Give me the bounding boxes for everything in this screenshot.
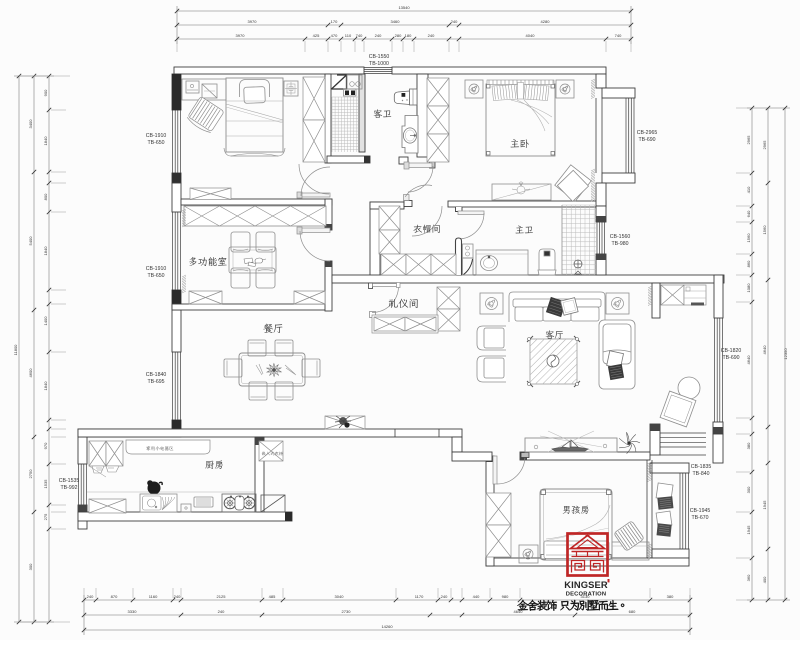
svg-text:4040: 4040 (526, 33, 536, 38)
svg-text:380: 380 (667, 594, 674, 599)
svg-text:TB-1000: TB-1000 (369, 61, 389, 67)
svg-text:TB-690: TB-690 (722, 355, 739, 361)
svg-text:275: 275 (43, 513, 48, 520)
svg-text:2965: 2965 (762, 140, 767, 150)
svg-text:DECORATION: DECORATION (566, 592, 607, 598)
svg-text:12350: 12350 (783, 348, 788, 360)
svg-text:1400: 1400 (43, 316, 48, 326)
svg-text:870: 870 (111, 594, 118, 599)
svg-text:740: 740 (356, 33, 363, 38)
svg-text:860: 860 (746, 260, 751, 267)
svg-text:1535: 1535 (43, 479, 48, 489)
svg-text:3970: 3970 (248, 19, 258, 24)
svg-text:2125: 2125 (217, 594, 227, 599)
svg-text:1840: 1840 (43, 246, 48, 256)
svg-text:300: 300 (746, 486, 751, 493)
svg-text:485: 485 (269, 594, 276, 599)
svg-text:4640: 4640 (746, 355, 751, 365)
svg-text:180: 180 (405, 33, 412, 38)
svg-text:240: 240 (87, 594, 94, 599)
svg-text:640: 640 (746, 210, 751, 217)
svg-text:1945: 1945 (762, 500, 767, 510)
svg-text:CB-1535: CB-1535 (59, 478, 80, 484)
svg-text:240: 240 (218, 609, 225, 614)
svg-text:1170: 1170 (415, 594, 424, 599)
svg-text:680: 680 (629, 609, 636, 614)
svg-text:2750: 2750 (28, 469, 33, 479)
svg-text:740: 740 (615, 33, 622, 38)
svg-text:360: 360 (746, 574, 751, 581)
svg-text:2730: 2730 (342, 609, 352, 614)
svg-text:240: 240 (441, 594, 448, 599)
svg-text:3460: 3460 (391, 19, 401, 24)
svg-text:170: 170 (331, 19, 338, 24)
svg-text:1080: 1080 (746, 283, 751, 293)
svg-text:2965: 2965 (746, 135, 751, 145)
svg-text:3970: 3970 (236, 33, 246, 38)
svg-text:425: 425 (313, 33, 320, 38)
svg-text:13540: 13540 (398, 5, 410, 10)
svg-text:1560: 1560 (762, 225, 767, 235)
svg-text:CB-1820: CB-1820 (721, 348, 742, 354)
svg-text:470: 470 (331, 33, 338, 38)
svg-text:3040: 3040 (335, 594, 345, 599)
svg-text:4640: 4640 (762, 345, 767, 355)
svg-text:TB-840: TB-840 (692, 471, 709, 477)
svg-text:3400: 3400 (28, 119, 33, 129)
svg-text:240: 240 (451, 19, 458, 24)
svg-text:KINGSER: KINGSER (564, 579, 608, 590)
svg-text:280: 280 (395, 33, 402, 38)
svg-text:4600: 4600 (28, 368, 33, 378)
svg-text:1840: 1840 (43, 136, 48, 146)
svg-text:1840: 1840 (43, 381, 48, 391)
svg-text:3330: 3330 (128, 609, 138, 614)
svg-text:1560: 1560 (746, 233, 751, 243)
svg-text:980: 980 (502, 594, 509, 599)
svg-text:CB-1835: CB-1835 (691, 464, 712, 470)
svg-text:CB-1560: CB-1560 (610, 234, 631, 240)
svg-text:CB-1910: CB-1910 (146, 133, 167, 139)
svg-text:TB-980: TB-980 (611, 241, 628, 247)
svg-text:1160: 1160 (149, 594, 158, 599)
svg-text:CB-1910: CB-1910 (146, 266, 167, 272)
svg-text:400: 400 (762, 576, 767, 583)
svg-text:11800: 11800 (13, 344, 18, 356)
svg-text:TB-650: TB-650 (147, 273, 164, 279)
svg-text:TB-690: TB-690 (638, 137, 655, 143)
svg-text:240: 240 (428, 33, 435, 38)
svg-text:CB-1840: CB-1840 (146, 372, 167, 378)
svg-text:1945: 1945 (746, 525, 751, 535)
svg-text:970: 970 (43, 442, 48, 449)
svg-text:CB-1945: CB-1945 (690, 508, 711, 514)
svg-text:440: 440 (473, 594, 480, 599)
svg-text:TB-650: TB-650 (147, 140, 164, 146)
svg-text:800: 800 (43, 193, 48, 200)
svg-text:CB-2965: CB-2965 (637, 130, 658, 136)
svg-text:300: 300 (28, 563, 33, 570)
svg-text:TB-992: TB-992 (60, 485, 77, 491)
svg-text:5400: 5400 (28, 236, 33, 246)
svg-text:TB-695: TB-695 (147, 379, 164, 385)
svg-text:CB-1550: CB-1550 (369, 54, 390, 60)
svg-text:240: 240 (375, 33, 382, 38)
svg-text:240: 240 (174, 594, 181, 599)
svg-text:110: 110 (345, 33, 352, 38)
svg-text:900: 900 (43, 89, 48, 96)
svg-text:4280: 4280 (541, 19, 551, 24)
svg-text:14260: 14260 (381, 624, 393, 629)
svg-text:380: 380 (746, 442, 751, 449)
svg-text:TB-670: TB-670 (691, 515, 708, 521)
svg-text:410: 410 (746, 186, 751, 193)
